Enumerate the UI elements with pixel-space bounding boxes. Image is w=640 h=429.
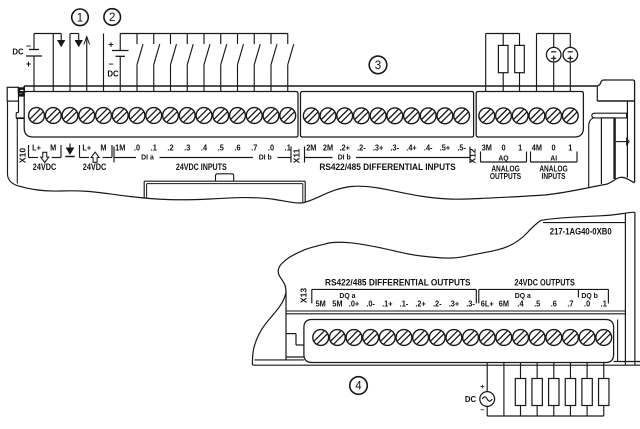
svg-text:24VDC INPUTS: 24VDC INPUTS	[176, 161, 227, 172]
svg-text:–: –	[480, 405, 484, 414]
svg-text:2M: 2M	[306, 143, 316, 152]
svg-text:.5: .5	[534, 299, 541, 308]
svg-text:L+: L+	[32, 143, 41, 152]
svg-text:.3-: .3-	[391, 143, 400, 152]
svg-text:0: 0	[552, 143, 556, 152]
svg-text:OUTPUTS: OUTPUTS	[490, 171, 521, 181]
svg-text:M: M	[50, 143, 56, 152]
svg-text:5M: 5M	[316, 299, 326, 308]
svg-text:.5-: .5-	[457, 143, 466, 152]
svg-text:.0: .0	[134, 143, 140, 152]
svg-text:RS422/485 DIFFERENTIAL INPUTS: RS422/485 DIFFERENTIAL INPUTS	[319, 161, 455, 172]
svg-text:.6: .6	[234, 143, 240, 152]
svg-text:+: +	[26, 59, 31, 69]
svg-text:6M: 6M	[499, 299, 509, 308]
svg-text:24VDC: 24VDC	[33, 161, 56, 172]
svg-text:AQ: AQ	[498, 153, 509, 162]
svg-text:DI a: DI a	[141, 152, 155, 161]
svg-text:.2: .2	[167, 143, 173, 152]
svg-text:.5: .5	[218, 143, 225, 152]
svg-text:.7: .7	[251, 143, 257, 152]
svg-text:.7: .7	[567, 299, 573, 308]
svg-text:X11: X11	[292, 148, 302, 163]
svg-text:6L+: 6L+	[481, 299, 494, 308]
svg-text:–: –	[26, 41, 31, 51]
svg-text:X13: X13	[298, 288, 308, 303]
svg-text:.3: .3	[184, 143, 190, 152]
svg-text:DI b: DI b	[338, 152, 352, 161]
svg-text:.3-: .3-	[466, 299, 475, 308]
svg-text:X10: X10	[18, 148, 28, 163]
svg-text:.2+: .2+	[415, 299, 426, 308]
svg-text:L+: L+	[82, 143, 91, 152]
svg-text:3: 3	[375, 60, 381, 72]
svg-text:.3+: .3+	[449, 299, 460, 308]
svg-text:DC: DC	[107, 69, 118, 78]
svg-text:DI b: DI b	[259, 152, 273, 161]
svg-text:DC: DC	[465, 395, 476, 404]
svg-text:M: M	[100, 143, 106, 152]
svg-text:INPUTS: INPUTS	[541, 171, 565, 181]
svg-text:.6: .6	[551, 299, 557, 308]
svg-text:217-1AG40-0XB0: 217-1AG40-0XB0	[550, 226, 612, 237]
svg-text:1: 1	[568, 143, 573, 152]
svg-text:24VDC: 24VDC	[83, 161, 106, 172]
svg-text:4M: 4M	[532, 143, 542, 152]
svg-text:4: 4	[355, 381, 362, 393]
svg-text:.1: .1	[601, 299, 608, 308]
svg-text:.0+: .0+	[349, 299, 360, 308]
svg-text:.1-: .1-	[400, 299, 409, 308]
svg-text:–: –	[108, 59, 113, 69]
svg-text:.4: .4	[517, 299, 524, 308]
svg-text:1: 1	[518, 143, 523, 152]
svg-text:2: 2	[109, 12, 115, 24]
svg-text:3M: 3M	[482, 143, 492, 152]
svg-text:.2-: .2-	[433, 299, 442, 308]
svg-text:0: 0	[501, 143, 505, 152]
svg-text:.4+: .4+	[406, 143, 417, 152]
svg-text:AI: AI	[550, 153, 557, 162]
svg-text:+: +	[108, 40, 113, 50]
svg-text:.3+: .3+	[373, 143, 384, 152]
svg-text:.1+: .1+	[382, 299, 393, 308]
svg-text:X12: X12	[468, 148, 478, 163]
svg-text:.4-: .4-	[424, 143, 433, 152]
svg-text:.0: .0	[584, 299, 590, 308]
svg-text:.5+: .5+	[440, 143, 451, 152]
svg-text:.2-: .2-	[357, 143, 366, 152]
svg-text:1: 1	[77, 13, 83, 25]
svg-text:24VDC OUTPUTS: 24VDC OUTPUTS	[515, 277, 576, 288]
svg-text:5M: 5M	[332, 299, 342, 308]
svg-text:RS422/485 DIFFERENTIAL OUTPUTS: RS422/485 DIFFERENTIAL OUTPUTS	[325, 277, 471, 288]
svg-text:.0-: .0-	[366, 299, 375, 308]
svg-text:+: +	[480, 382, 485, 391]
svg-text:.4: .4	[201, 143, 208, 152]
svg-text:2M: 2M	[323, 143, 333, 152]
svg-text:1M: 1M	[115, 143, 125, 152]
svg-text:DC: DC	[12, 47, 23, 56]
